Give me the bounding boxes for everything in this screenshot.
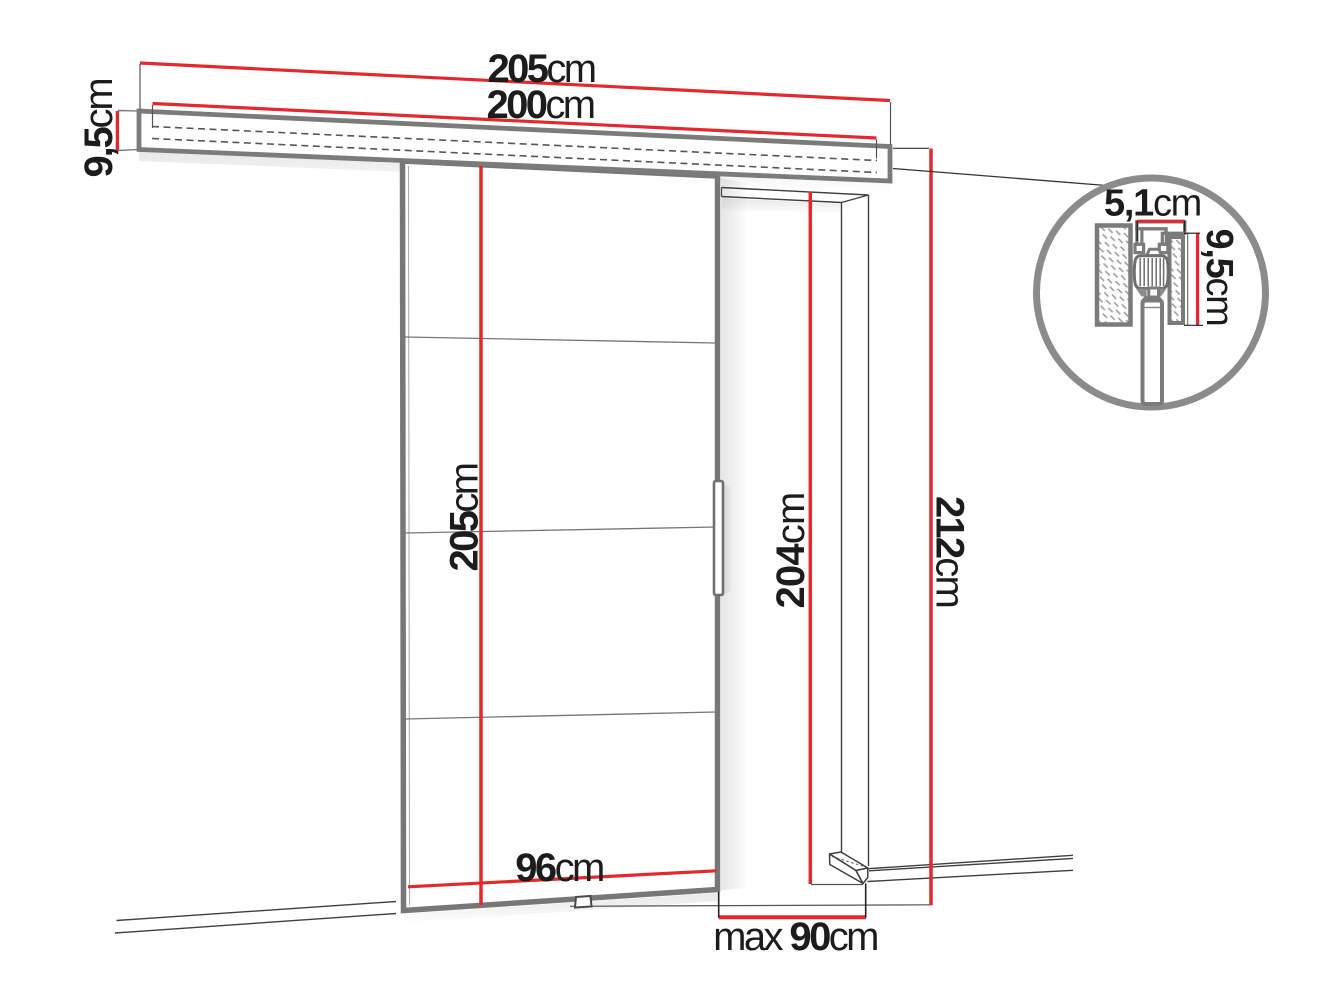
svg-text:max 90cm: max 90cm [713, 915, 877, 959]
svg-text:205cm: 205cm [443, 464, 487, 571]
svg-text:9,5cm: 9,5cm [1198, 229, 1240, 326]
svg-text:9,5cm: 9,5cm [77, 80, 121, 178]
svg-text:200cm: 200cm [486, 83, 593, 127]
svg-text:212cm: 212cm [928, 496, 972, 607]
svg-text:96cm: 96cm [515, 846, 603, 890]
svg-text:204cm: 204cm [769, 492, 813, 608]
svg-text:5,1cm: 5,1cm [1104, 183, 1201, 225]
